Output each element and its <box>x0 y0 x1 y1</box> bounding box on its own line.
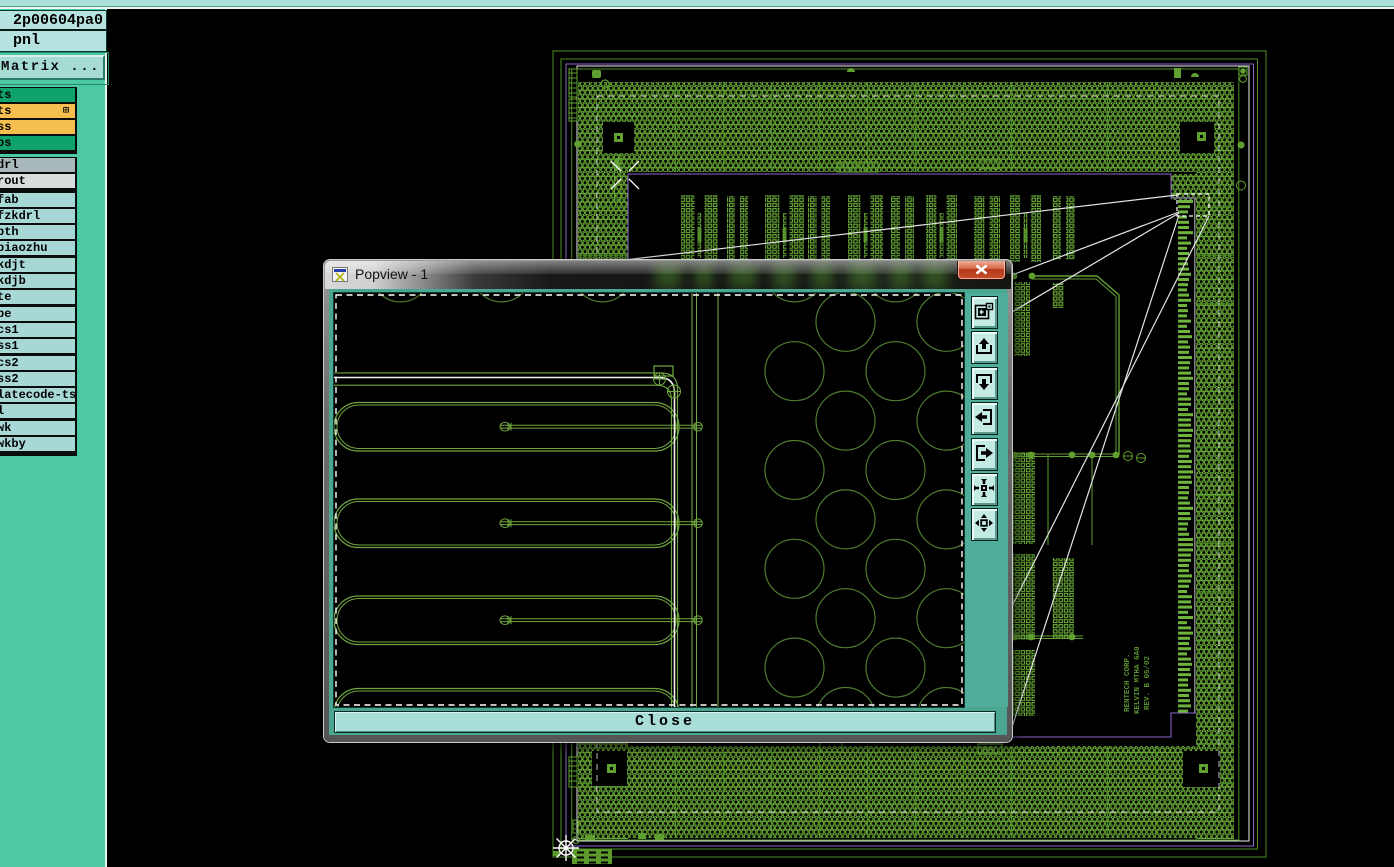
svg-text:KELVIN MTHA 6A0: KELVIN MTHA 6A0 <box>1134 646 1142 714</box>
svg-text:RENTECH CORP.: RENTECH CORP. <box>1124 653 1132 712</box>
svg-text:REV. B 05/02: REV. B 05/02 <box>1144 655 1152 710</box>
